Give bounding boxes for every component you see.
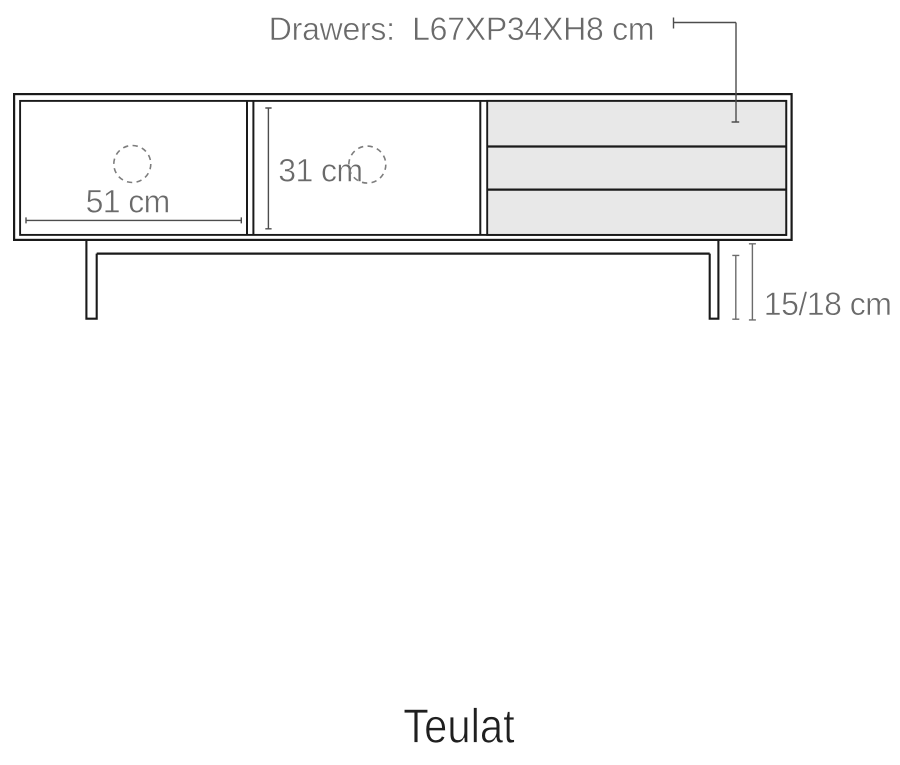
svg-text:15/18 cm: 15/18 cm [764,286,892,322]
svg-text:51 cm: 51 cm [86,184,170,220]
svg-text:Teulat: Teulat [403,698,515,753]
svg-text:Drawers: L67XP34XH8 cm: Drawers: L67XP34XH8 cm [269,11,655,47]
